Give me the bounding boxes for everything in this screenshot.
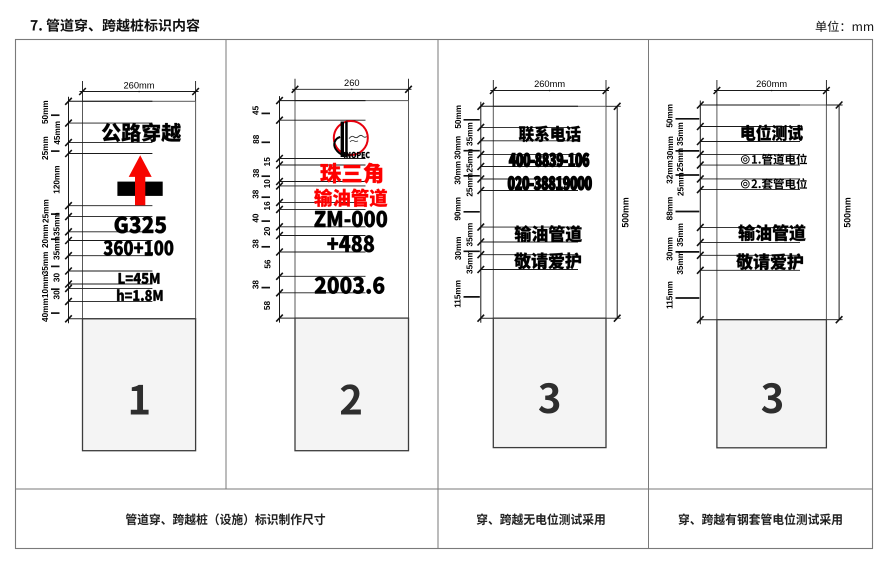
svg-text:50mm: 50mm xyxy=(41,100,50,124)
svg-text:30mm: 30mm xyxy=(666,136,675,160)
svg-text:88: 88 xyxy=(252,134,261,144)
svg-text:25mm: 25mm xyxy=(676,172,685,196)
svg-text:35mm: 35mm xyxy=(466,122,475,146)
svg-text:115mm: 115mm xyxy=(666,281,675,309)
svg-text:45mm: 45mm xyxy=(53,121,62,145)
svg-text:88mm: 88mm xyxy=(666,197,675,221)
svg-text:500mm: 500mm xyxy=(842,197,852,227)
svg-text:30: 30 xyxy=(53,273,62,283)
svg-text:260: 260 xyxy=(344,78,360,88)
svg-text:30mm: 30mm xyxy=(454,136,463,160)
svg-text:90mm: 90mm xyxy=(454,197,463,221)
svg-text:25mm: 25mm xyxy=(41,136,50,160)
svg-text:35mm: 35mm xyxy=(53,236,62,260)
svg-text:30: 30 xyxy=(53,290,62,300)
svg-text:30mm: 30mm xyxy=(454,161,463,185)
svg-text:10: 10 xyxy=(263,179,272,189)
svg-text:45: 45 xyxy=(252,105,261,115)
svg-text:25mm: 25mm xyxy=(41,199,50,223)
svg-text:35mm: 35mm xyxy=(466,250,475,274)
svg-text:25mm: 25mm xyxy=(676,148,685,172)
svg-text:260mm: 260mm xyxy=(756,79,787,89)
svg-text:38: 38 xyxy=(252,168,261,178)
svg-text:38: 38 xyxy=(252,189,261,199)
svg-text:50mm: 50mm xyxy=(666,104,675,128)
svg-text:35mm: 35mm xyxy=(676,122,685,146)
svg-text:115mm: 115mm xyxy=(454,280,463,308)
svg-text:500mm: 500mm xyxy=(621,197,631,227)
svg-text:40: 40 xyxy=(252,213,261,223)
svg-text:25mm: 25mm xyxy=(466,149,475,173)
svg-text:260mm: 260mm xyxy=(534,79,565,89)
svg-text:35mm: 35mm xyxy=(676,251,685,275)
svg-text:38: 38 xyxy=(252,239,261,249)
svg-text:120mm: 120mm xyxy=(53,165,62,193)
svg-text:35mm: 35mm xyxy=(53,212,62,236)
svg-text:50mm: 50mm xyxy=(454,105,463,129)
svg-text:40mm: 40mm xyxy=(41,298,50,322)
svg-text:25mm: 25mm xyxy=(466,173,475,197)
svg-text:20mm: 20mm xyxy=(41,224,50,248)
svg-text:56: 56 xyxy=(263,259,272,269)
svg-text:20: 20 xyxy=(263,226,272,236)
svg-text:35mm: 35mm xyxy=(676,223,685,247)
svg-text:15: 15 xyxy=(263,157,272,167)
svg-text:10mm: 10mm xyxy=(41,274,50,298)
svg-text:58: 58 xyxy=(263,301,272,311)
svg-text:16: 16 xyxy=(263,201,272,211)
svg-text:30mm: 30mm xyxy=(666,237,675,261)
svg-text:35mm: 35mm xyxy=(466,223,475,247)
svg-text:32mm: 32mm xyxy=(666,160,675,184)
svg-text:260mm: 260mm xyxy=(123,80,154,90)
svg-text:30mm: 30mm xyxy=(454,236,463,260)
svg-text:38: 38 xyxy=(252,280,261,290)
svg-text:35mm: 35mm xyxy=(41,252,50,276)
